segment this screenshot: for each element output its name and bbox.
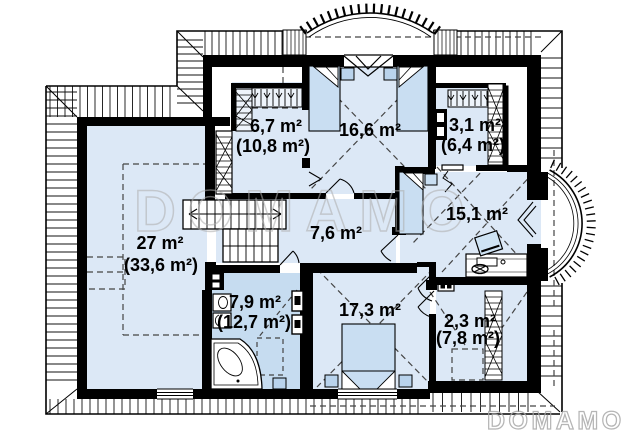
svg-text:(7,8 m²): (7,8 m²) <box>436 328 500 348</box>
svg-text:(33,6 m²): (33,6 m²) <box>124 255 198 275</box>
svg-text:DOMAMO: DOMAMO <box>487 407 625 435</box>
svg-text:(6,4 m²): (6,4 m²) <box>441 135 505 155</box>
svg-text:6,7 m²: 6,7 m² <box>250 116 302 136</box>
svg-text:15,1 m²: 15,1 m² <box>446 204 508 224</box>
svg-text:DOMAMO: DOMAMO <box>134 179 477 244</box>
svg-text:17,3 m²: 17,3 m² <box>339 300 401 320</box>
svg-text:7,9 m²: 7,9 m² <box>229 292 281 312</box>
svg-text:27 m²: 27 m² <box>136 233 183 253</box>
svg-text:7,6 m²: 7,6 m² <box>310 223 362 243</box>
svg-text:(12,7 m²): (12,7 m²) <box>217 312 291 332</box>
svg-text:(10,8 m²): (10,8 m²) <box>236 136 310 156</box>
svg-text:3,1 m²: 3,1 m² <box>449 115 501 135</box>
svg-text:16,6 m²: 16,6 m² <box>339 120 401 140</box>
